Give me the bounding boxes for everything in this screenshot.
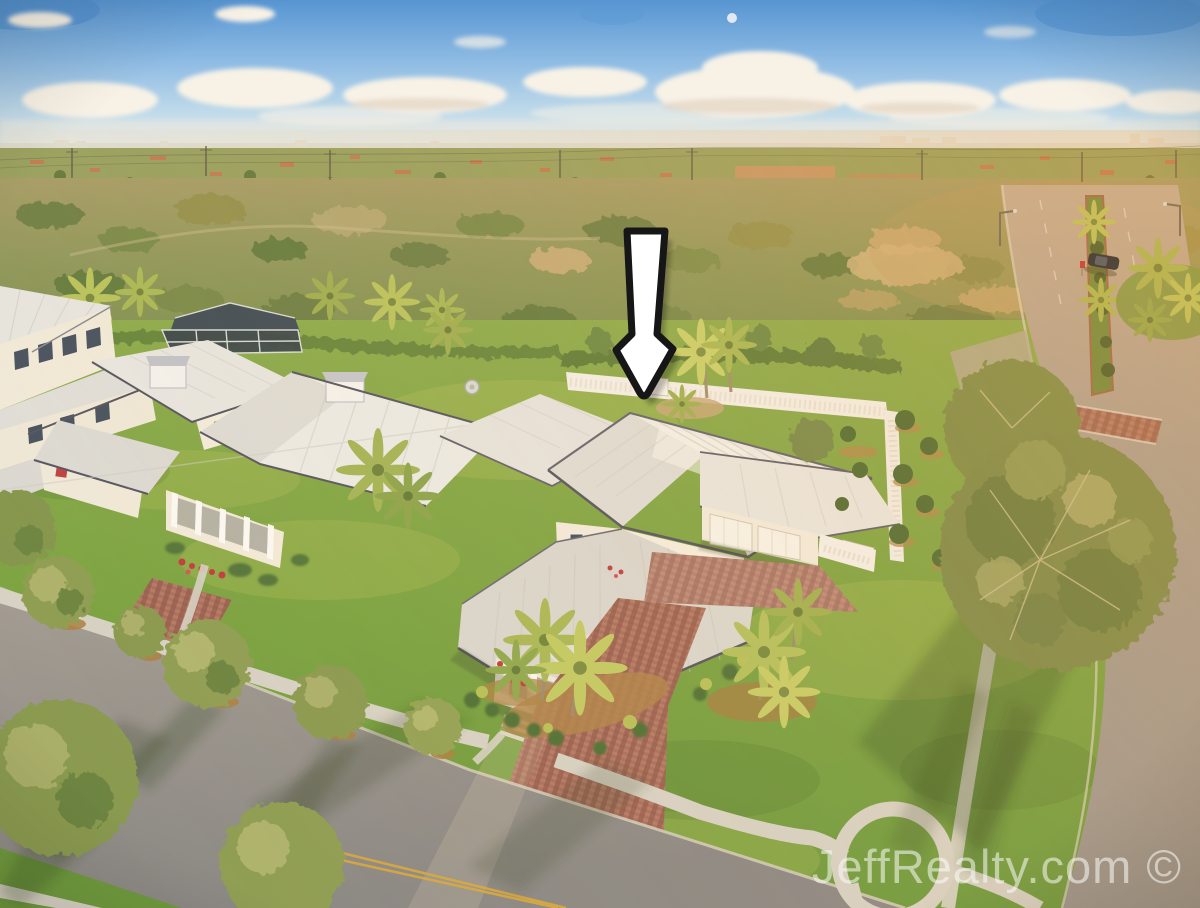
vignette xyxy=(0,0,1200,908)
aerial-photo: JeffRealty.com © xyxy=(0,0,1200,908)
